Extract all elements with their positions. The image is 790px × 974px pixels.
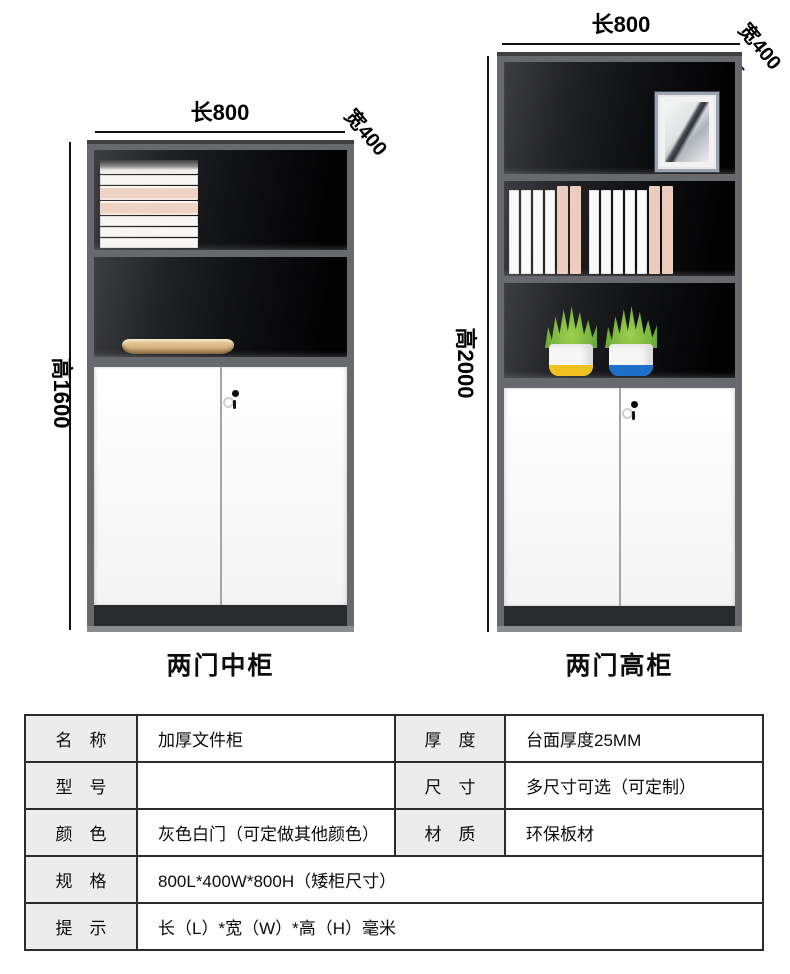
key-icon [632, 411, 635, 420]
right-length-dimension-label: 长800 [502, 14, 740, 36]
right-height-dimension-label: 高2000 [454, 325, 476, 401]
book-spine [601, 190, 611, 274]
medium-cabinet-shelf-middle [94, 257, 347, 357]
spec-color-label: 颜 色 [25, 809, 137, 856]
book-spine [533, 190, 543, 274]
tall-cabinet-shelf-lower [504, 283, 735, 378]
book-spine [100, 175, 198, 185]
right-length-dimension-line [502, 43, 740, 45]
spec-table: 名 称 加厚文件柜 厚 度 台面厚度25MM 型 号 尺 寸 多尺寸可选（可定制… [24, 714, 764, 951]
plant-pot [549, 344, 593, 376]
pot-band-blue [609, 365, 653, 376]
spec-color-value: 灰色白门（可定做其他颜色） [137, 809, 395, 856]
table-row: 提 示 长（L）*宽（W）*高（H）毫米 [25, 903, 763, 950]
cabinet-base [94, 605, 347, 626]
spec-model-value [137, 762, 395, 809]
tall-cabinet-shelf-middle [504, 181, 735, 276]
medium-cabinet-figure [87, 140, 354, 632]
shelf-divider [94, 250, 347, 257]
book-spine [521, 190, 531, 274]
right-height-dimension-line [487, 56, 489, 632]
spec-model-label: 型 号 [25, 762, 137, 809]
book-row-gap [583, 273, 587, 274]
pot-band-yellow [549, 365, 593, 376]
book-spine [637, 190, 647, 274]
book-spine [509, 190, 519, 274]
key-icon [233, 400, 236, 409]
plant-foliage [545, 304, 597, 348]
spec-material-label: 材 质 [395, 809, 505, 856]
table-row: 型 号 尺 寸 多尺寸可选（可定制） [25, 762, 763, 809]
book-spine [100, 216, 198, 226]
tall-cabinet-shelf-top [504, 62, 735, 174]
book-spine [649, 186, 660, 274]
book-stack [100, 160, 198, 248]
book-spine [662, 186, 673, 274]
medium-cabinet-caption: 两门中柜 [87, 646, 354, 682]
wooden-tray [122, 339, 234, 354]
door-split-line [619, 388, 621, 606]
book-spine [625, 190, 635, 274]
book-spine [557, 186, 568, 274]
shelf-divider [94, 357, 347, 367]
spec-tip-value: 长（L）*宽（W）*高（H）毫米 [137, 903, 763, 950]
table-row: 颜 色 灰色白门（可定做其他颜色） 材 质 环保板材 [25, 809, 763, 856]
book-spine [100, 201, 198, 215]
spec-size-label: 尺 寸 [395, 762, 505, 809]
shelf-divider [504, 276, 735, 283]
key-icon [223, 397, 234, 408]
spec-material-value: 环保板材 [505, 809, 763, 856]
photo-frame-art [665, 102, 709, 162]
door-split-line [220, 367, 222, 605]
spec-tip-label: 提 示 [25, 903, 137, 950]
book-spine [100, 160, 198, 174]
spec-name-value: 加厚文件柜 [137, 715, 395, 762]
table-row: 名 称 加厚文件柜 厚 度 台面厚度25MM [25, 715, 763, 762]
plant-foliage [605, 304, 657, 348]
spec-thickness-label: 厚 度 [395, 715, 505, 762]
tall-cabinet-doors [504, 388, 735, 606]
cabinet-base [504, 606, 735, 626]
spec-thickness-value: 台面厚度25MM [505, 715, 763, 762]
spec-name-label: 名 称 [25, 715, 137, 762]
spec-spec-value: 800L*400W*800H（矮柜尺寸） [137, 856, 763, 903]
potted-plant [604, 294, 658, 376]
lock-icon [232, 390, 239, 397]
left-length-dimension-label: 长800 [95, 102, 345, 124]
book-spine [100, 238, 198, 248]
tall-cabinet-caption: 两门高柜 [497, 646, 742, 682]
book-spine [570, 186, 581, 274]
spec-size-value: 多尺寸可选（可定制） [505, 762, 763, 809]
book-spine [613, 190, 623, 274]
tall-cabinet-figure [497, 52, 742, 632]
plant-pot [609, 344, 653, 376]
book-spine [545, 190, 555, 274]
spec-spec-label: 规 格 [25, 856, 137, 903]
book-spine [100, 227, 198, 237]
key-icon [622, 408, 633, 419]
table-row: 规 格 800L*400W*800H（矮柜尺寸） [25, 856, 763, 903]
medium-cabinet-doors [94, 367, 347, 605]
left-length-dimension-line [95, 131, 345, 133]
shelf-divider [504, 174, 735, 181]
book-spine [589, 190, 599, 274]
left-height-dimension-label: 高1600 [50, 355, 72, 431]
book-spine [100, 186, 198, 200]
lock-icon [631, 401, 638, 408]
photo-frame [655, 92, 719, 172]
medium-cabinet-shelf-top [94, 150, 347, 250]
book-row [509, 186, 673, 274]
potted-plant [544, 294, 598, 376]
shelf-divider [504, 378, 735, 388]
